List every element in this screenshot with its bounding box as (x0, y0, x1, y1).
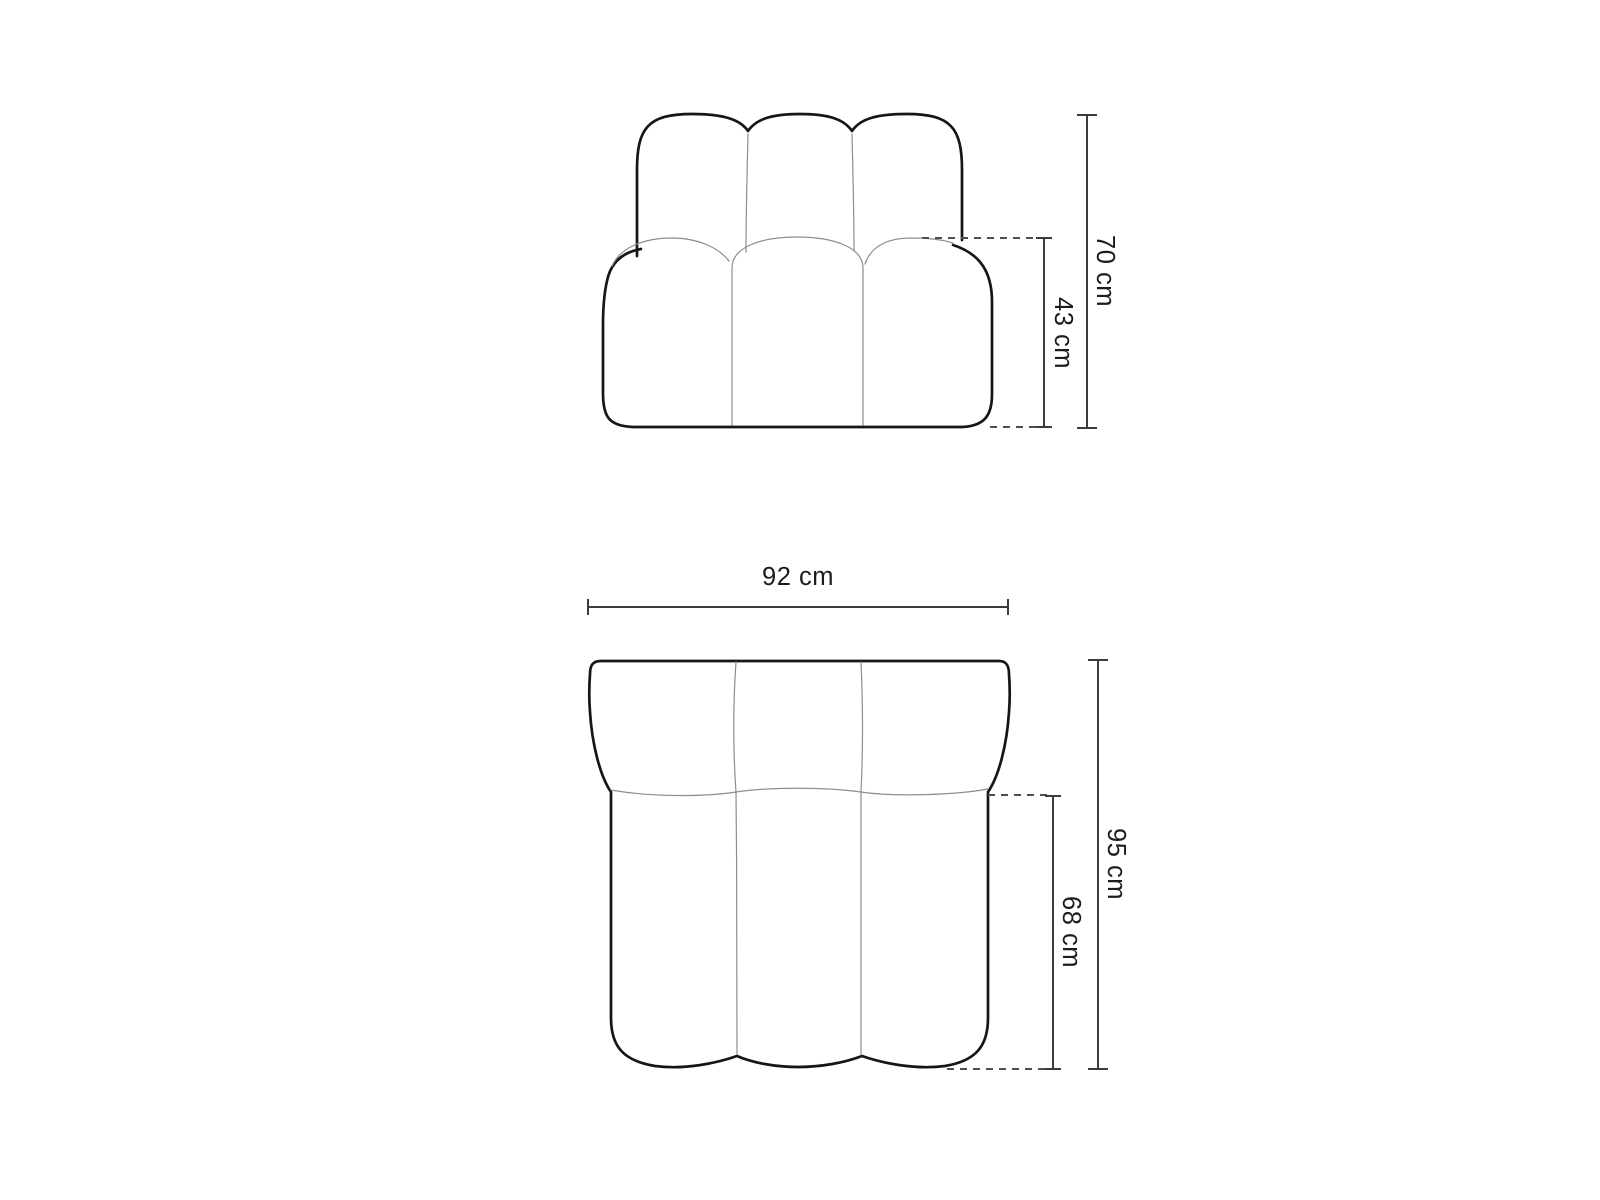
front-view-outline (603, 114, 992, 427)
dimension-drawing-page: 43 cm 70 cm 92 cm (0, 0, 1600, 1200)
overall-height-label: 70 cm (1091, 235, 1119, 307)
top-body-outline (589, 661, 1010, 1067)
top-view-outline (589, 661, 1010, 1067)
overall-depth-label: 95 cm (1102, 828, 1130, 900)
front-view: 43 cm 70 cm (603, 114, 1119, 428)
front-view-seams (612, 134, 953, 425)
front-seat-cushion-middle (732, 237, 863, 425)
top-back-seat-seam (611, 788, 988, 795)
top-overall-depth-dimension: 95 cm (1088, 660, 1130, 1069)
width-label: 92 cm (762, 563, 834, 591)
front-seat-height-dimension: 43 cm (1036, 238, 1077, 427)
top-view-projection-lines (947, 795, 1053, 1069)
seat-height-label: 43 cm (1049, 297, 1077, 369)
top-channel-seam-left (734, 662, 737, 1054)
top-channel-seam-right (861, 662, 863, 1054)
top-width-dimension: 92 cm (588, 563, 1008, 615)
top-seat-depth-dimension: 68 cm (1045, 796, 1085, 1069)
front-seat-outline (603, 245, 992, 427)
top-view-seams (611, 662, 988, 1054)
seat-depth-label: 68 cm (1057, 896, 1085, 968)
top-view: 92 cm 68 cm (588, 563, 1130, 1069)
front-backrest-seam-right (852, 134, 854, 251)
sofa-dimension-diagram: 43 cm 70 cm 92 cm (0, 0, 1600, 1200)
front-overall-height-dimension: 70 cm (1077, 115, 1119, 428)
front-seat-cushion-right-arc (865, 238, 953, 264)
front-backrest-outline (637, 114, 962, 256)
front-backrest-seam-left (746, 134, 748, 252)
